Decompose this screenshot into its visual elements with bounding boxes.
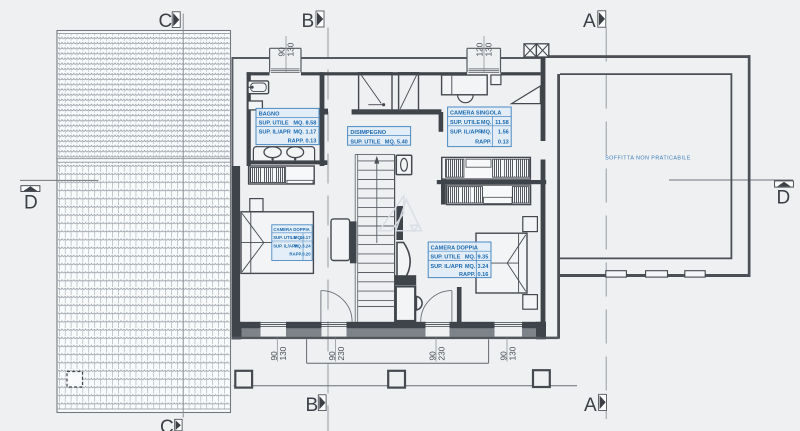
svg-text:230: 230 xyxy=(437,346,447,360)
svg-text:RAPP.: RAPP. xyxy=(475,140,492,146)
svg-text:130: 130 xyxy=(286,42,296,56)
svg-text:3.24: 3.24 xyxy=(478,264,490,270)
svg-text:0.20: 0.20 xyxy=(302,252,311,257)
svg-text:C: C xyxy=(160,417,174,431)
svg-text:RAPP. 0.13: RAPP. 0.13 xyxy=(288,139,317,145)
svg-text:230: 230 xyxy=(336,346,346,360)
svg-text:MQ.: MQ. xyxy=(481,120,492,126)
svg-text:MQ. 8.58: MQ. 8.58 xyxy=(293,120,316,126)
svg-text:RAPP.: RAPP. xyxy=(459,272,476,278)
svg-text:A: A xyxy=(584,395,597,416)
svg-text:0.13: 0.13 xyxy=(498,140,509,146)
svg-text:SOFFITTA NON PRATICABILE: SOFFITTA NON PRATICABILE xyxy=(605,156,691,162)
svg-text:A: A xyxy=(583,11,596,32)
svg-text:D: D xyxy=(24,193,38,214)
svg-text:D: D xyxy=(777,188,791,209)
svg-text:MQ.: MQ. xyxy=(294,243,302,248)
svg-text:RAPP.: RAPP. xyxy=(289,252,302,257)
svg-text:CAMERA DOPPIA: CAMERA DOPPIA xyxy=(431,245,478,251)
svg-text:SUP. UTILE: SUP. UTILE xyxy=(259,120,289,126)
svg-text:CAMERA DOPPIA: CAMERA DOPPIA xyxy=(273,227,309,232)
svg-text:SUP. UTILE: SUP. UTILE xyxy=(430,255,460,261)
svg-text:MQ. 5.40: MQ. 5.40 xyxy=(385,139,408,145)
svg-text:BAGNO: BAGNO xyxy=(259,111,280,117)
svg-text:16.17: 16.17 xyxy=(300,235,311,240)
svg-text:1.56: 1.56 xyxy=(498,129,509,135)
svg-text:SUP. UTILE: SUP. UTILE xyxy=(450,120,480,126)
svg-text:SUP. IL/APR: SUP. IL/APR xyxy=(259,130,291,136)
svg-text:130: 130 xyxy=(508,346,518,360)
svg-text:130: 130 xyxy=(278,346,288,360)
svg-text:DISIMPEGNO: DISIMPEGNO xyxy=(350,130,386,136)
svg-text:MQ.: MQ. xyxy=(481,129,492,135)
svg-text:C: C xyxy=(159,11,173,32)
svg-text:130: 130 xyxy=(484,42,494,56)
svg-text:CAMERA SINGOLA: CAMERA SINGOLA xyxy=(450,110,501,116)
svg-text:B: B xyxy=(306,395,319,416)
svg-text:SUP. IL/APR: SUP. IL/APR xyxy=(430,264,462,270)
svg-text:9.35: 9.35 xyxy=(478,255,489,261)
svg-text:MQ. 1.17: MQ. 1.17 xyxy=(293,130,316,136)
svg-text:3.24: 3.24 xyxy=(302,243,311,248)
svg-text:11.58: 11.58 xyxy=(495,120,509,126)
svg-text:B: B xyxy=(302,11,315,32)
svg-text:MQ.: MQ. xyxy=(465,255,476,261)
svg-text:MQ.: MQ. xyxy=(465,264,476,270)
svg-text:0.16: 0.16 xyxy=(478,272,489,278)
svg-text:SUP. UTILE: SUP. UTILE xyxy=(350,139,380,145)
svg-text:SUP. IL/APR: SUP. IL/APR xyxy=(450,129,482,135)
